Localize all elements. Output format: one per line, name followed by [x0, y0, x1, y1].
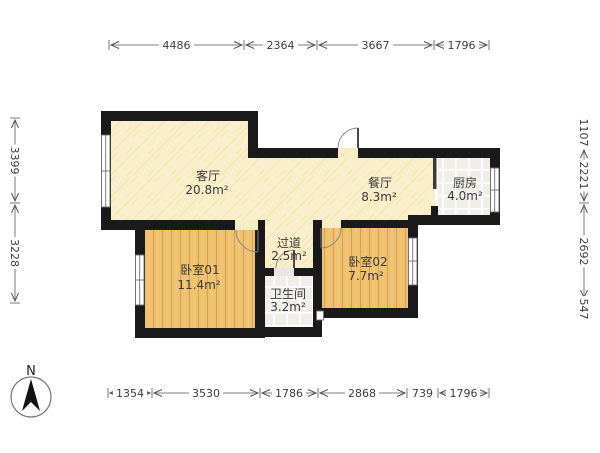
- dim-label: 2692: [577, 238, 590, 266]
- dim-chain-top: 4486 2364 3667 1796: [109, 39, 489, 52]
- dim-label: 4486: [163, 39, 191, 52]
- kitchen-window: [491, 168, 500, 212]
- dim-label: 547: [577, 299, 590, 320]
- dim-label: 2364: [267, 39, 295, 52]
- living-room-label: 客厅: [196, 168, 220, 183]
- dining-room-floor: [255, 155, 435, 222]
- bedroom01-area: 11.4m²: [177, 278, 220, 292]
- bathroom-area: 3.2m²: [270, 300, 306, 314]
- dim-label: 1107: [577, 119, 590, 147]
- compass-needle-icon: [22, 379, 40, 411]
- dim-label: 739: [412, 387, 433, 400]
- kitchen-partition-wall: [433, 158, 437, 189]
- bedroom01-label: 卧室01: [180, 262, 219, 277]
- living-room-floor: [108, 118, 258, 222]
- entry-door: [338, 128, 358, 158]
- dim-label: 3530: [192, 387, 220, 400]
- dim-chain-left: 3399 3228: [8, 118, 21, 303]
- dim-label: 2221: [577, 162, 590, 190]
- living-room-window: [102, 135, 111, 207]
- dim-label: 1796: [450, 387, 478, 400]
- dim-label: 2868: [348, 387, 376, 400]
- bedroom02-area: 7.7m²: [348, 269, 384, 283]
- dining-room-label: 餐厅: [368, 175, 392, 190]
- compass: N: [11, 364, 51, 417]
- dim-label: 1786: [275, 387, 303, 400]
- living-room-area: 20.8m²: [185, 183, 228, 197]
- bathroom-label: 卫生间: [270, 287, 306, 301]
- bathroom-small-window: [317, 311, 324, 320]
- kitchen-label: 厨房: [453, 175, 477, 190]
- dim-label: 3399: [8, 147, 21, 175]
- dining-room-area: 8.3m²: [361, 190, 397, 204]
- dim-label: 1354: [116, 387, 144, 400]
- bedroom02-window: [409, 238, 418, 285]
- kitchen-area: 4.0m²: [447, 189, 483, 203]
- hallway-label: 过道: [277, 236, 301, 250]
- dim-label: 3667: [362, 39, 390, 52]
- bedroom02-label: 卧室02: [348, 254, 387, 269]
- bedroom01-window: [136, 255, 145, 305]
- dim-chain-bottom: 1354 3530 1786 2868 739 1796: [108, 387, 489, 400]
- hallway-area: 2.5m²: [271, 249, 307, 263]
- dim-label: 1796: [448, 39, 476, 52]
- dim-chain-right: 1107 2221 2692 547: [577, 117, 590, 323]
- dim-label: 3228: [8, 239, 21, 267]
- floor-plan: 客厅 20.8m² 餐厅 8.3m² 厨房 4.0m² 过道 2.5m² 卧室0…: [0, 0, 600, 453]
